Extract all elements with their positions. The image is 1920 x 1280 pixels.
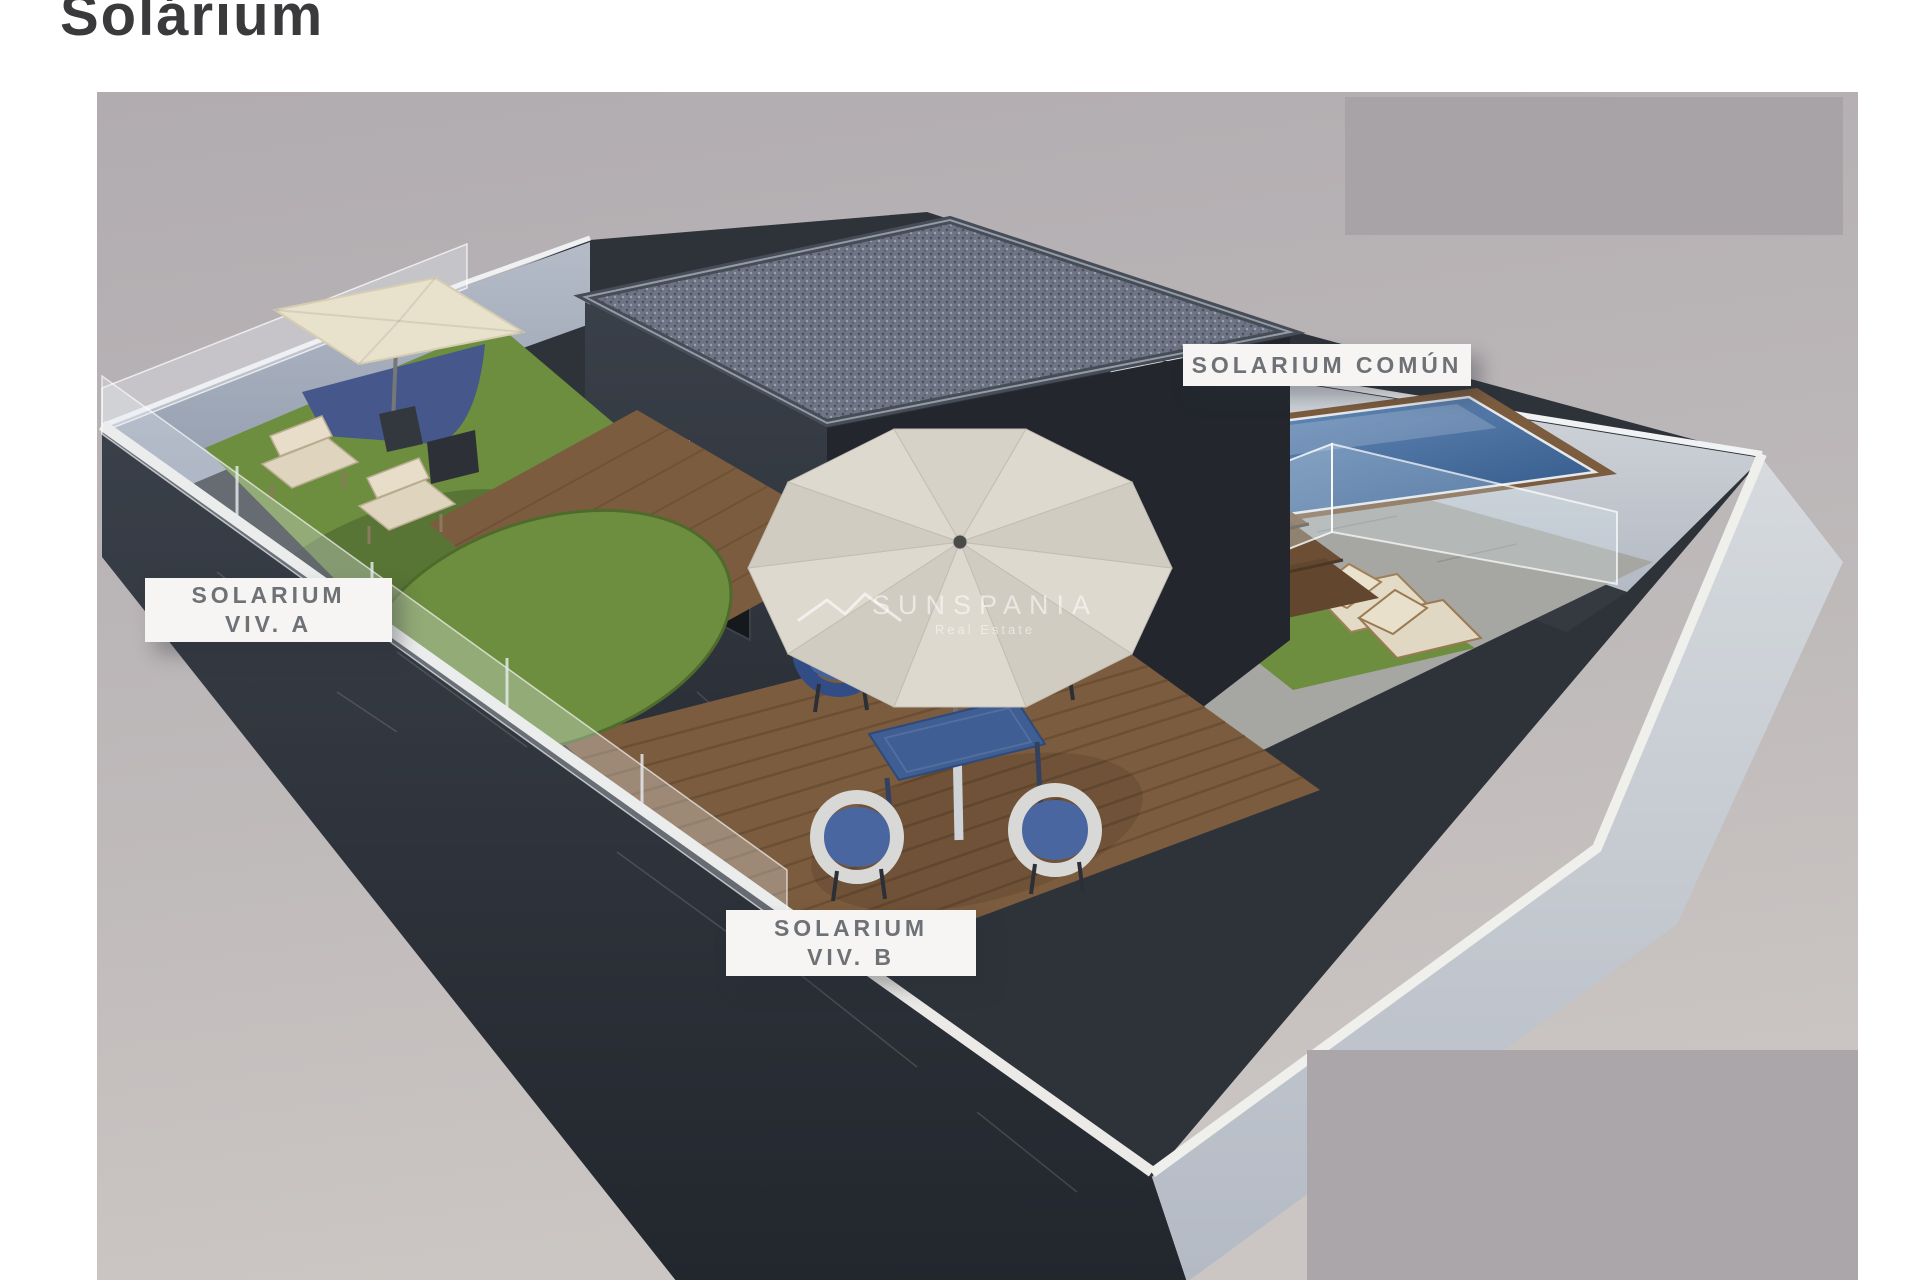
umbrella-canopy (748, 429, 1172, 707)
patch-top-right (1345, 97, 1843, 235)
label-solarium-comun: SOLARIUM COMÚN (1183, 344, 1471, 386)
solarium-3d-rendering: SUNSPANIA Real Estate SOLARIUM VIV. A SO… (97, 92, 1858, 1280)
rendering-canvas (97, 92, 1858, 1280)
label-comun-text: SOLARIUM COMÚN (1192, 351, 1463, 380)
page-title: Solárium (60, 0, 324, 46)
label-viv-b-line2: VIV. B (807, 943, 895, 972)
patch-bottom-right (1307, 1050, 1858, 1280)
umbrella-finial (953, 535, 967, 549)
label-viv-a-line1: SOLARIUM (192, 581, 346, 610)
solarium-page: Solárium (0, 0, 1920, 1280)
label-viv-b-line1: SOLARIUM (774, 914, 928, 943)
label-solarium-viv-a: SOLARIUM VIV. A (145, 578, 392, 642)
parasol-base (379, 406, 423, 452)
label-viv-a-line2: VIV. A (225, 610, 312, 639)
label-solarium-viv-b: SOLARIUM VIV. B (726, 910, 976, 976)
